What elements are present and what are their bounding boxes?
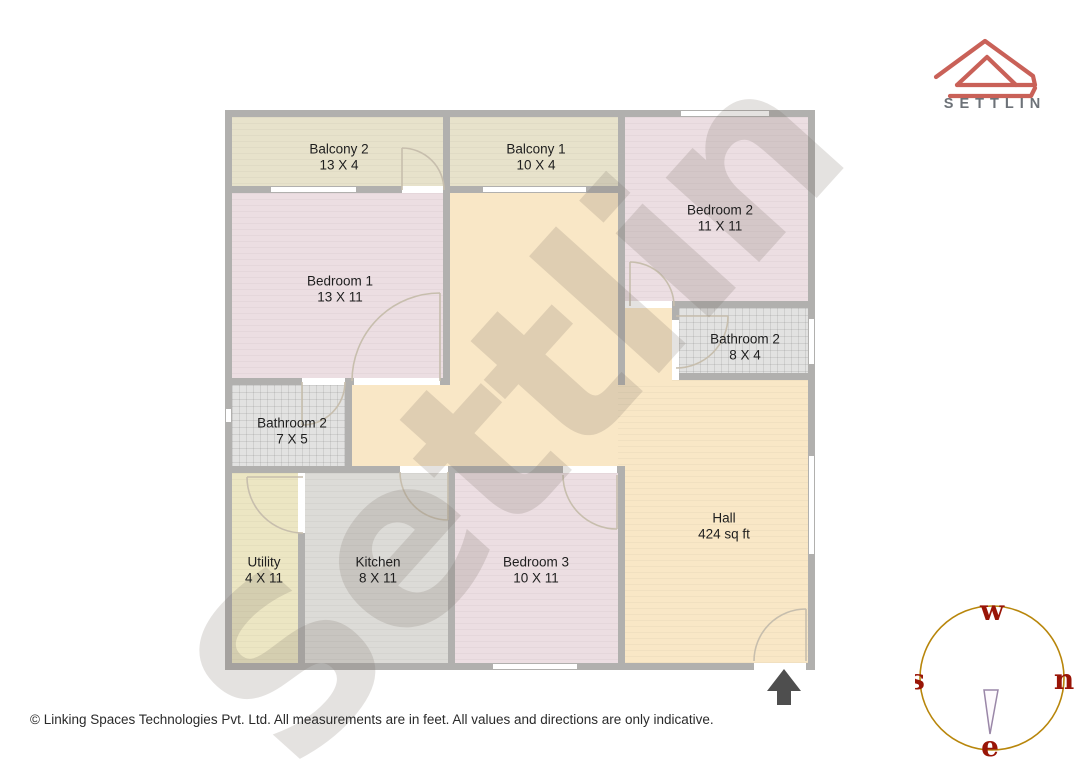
room-label: Bedroom 310 X 11	[503, 555, 569, 586]
compass-east: e	[981, 730, 999, 760]
room-label: Bathroom 27 X 5	[257, 416, 327, 447]
room-label: Balcony 213 X 4	[309, 142, 368, 173]
room-dimensions: 13 X 4	[309, 157, 368, 173]
entrance-arrow-icon	[760, 665, 810, 710]
room-label: Bedroom 211 X 11	[687, 203, 753, 234]
compass-south: s	[915, 663, 925, 696]
room-name: Kitchen	[355, 555, 400, 571]
copyright-text: © Linking Spaces Technologies Pvt. Ltd. …	[30, 712, 714, 727]
room-name: Bathroom 2	[710, 332, 780, 348]
room-label: Hall424 sq ft	[698, 511, 750, 542]
room-dimensions: 8 X 4	[710, 347, 780, 363]
room-name: Bedroom 2	[687, 203, 753, 219]
room-dimensions: 10 X 4	[506, 157, 565, 173]
room-dimensions: 424 sq ft	[698, 526, 750, 542]
room-label: Bathroom 28 X 4	[710, 332, 780, 363]
room-name: Bedroom 3	[503, 555, 569, 571]
room-dimensions: 7 X 5	[257, 431, 327, 447]
compass: w s n e	[915, 595, 1075, 760]
compass-west: w	[979, 595, 1005, 627]
settlin-logo-text: SETTLIN	[915, 96, 1075, 112]
room-dimensions: 8 X 11	[355, 570, 400, 586]
room-name: Bedroom 1	[307, 274, 373, 290]
room-name: Balcony 2	[309, 142, 368, 158]
compass-north: n	[1054, 663, 1074, 696]
room-label: Utility4 X 11	[245, 555, 283, 586]
room-label: Balcony 110 X 4	[506, 142, 565, 173]
compass-needle	[984, 690, 998, 734]
room-label: Kitchen8 X 11	[355, 555, 400, 586]
room-dimensions: 10 X 11	[503, 570, 569, 586]
room-label: Bedroom 113 X 11	[307, 274, 373, 305]
room-name: Hall	[698, 511, 750, 527]
room-dimensions: 11 X 11	[687, 218, 753, 234]
room-name: Bathroom 2	[257, 416, 327, 432]
floorplan-page: Settlin Balcony 213 X 4Balcony 110 X 4Be…	[0, 0, 1080, 764]
compass-circle	[920, 606, 1064, 750]
room-dimensions: 4 X 11	[245, 570, 283, 586]
room-dimensions: 13 X 11	[307, 289, 373, 305]
room-name: Utility	[245, 555, 283, 571]
room-name: Balcony 1	[506, 142, 565, 158]
